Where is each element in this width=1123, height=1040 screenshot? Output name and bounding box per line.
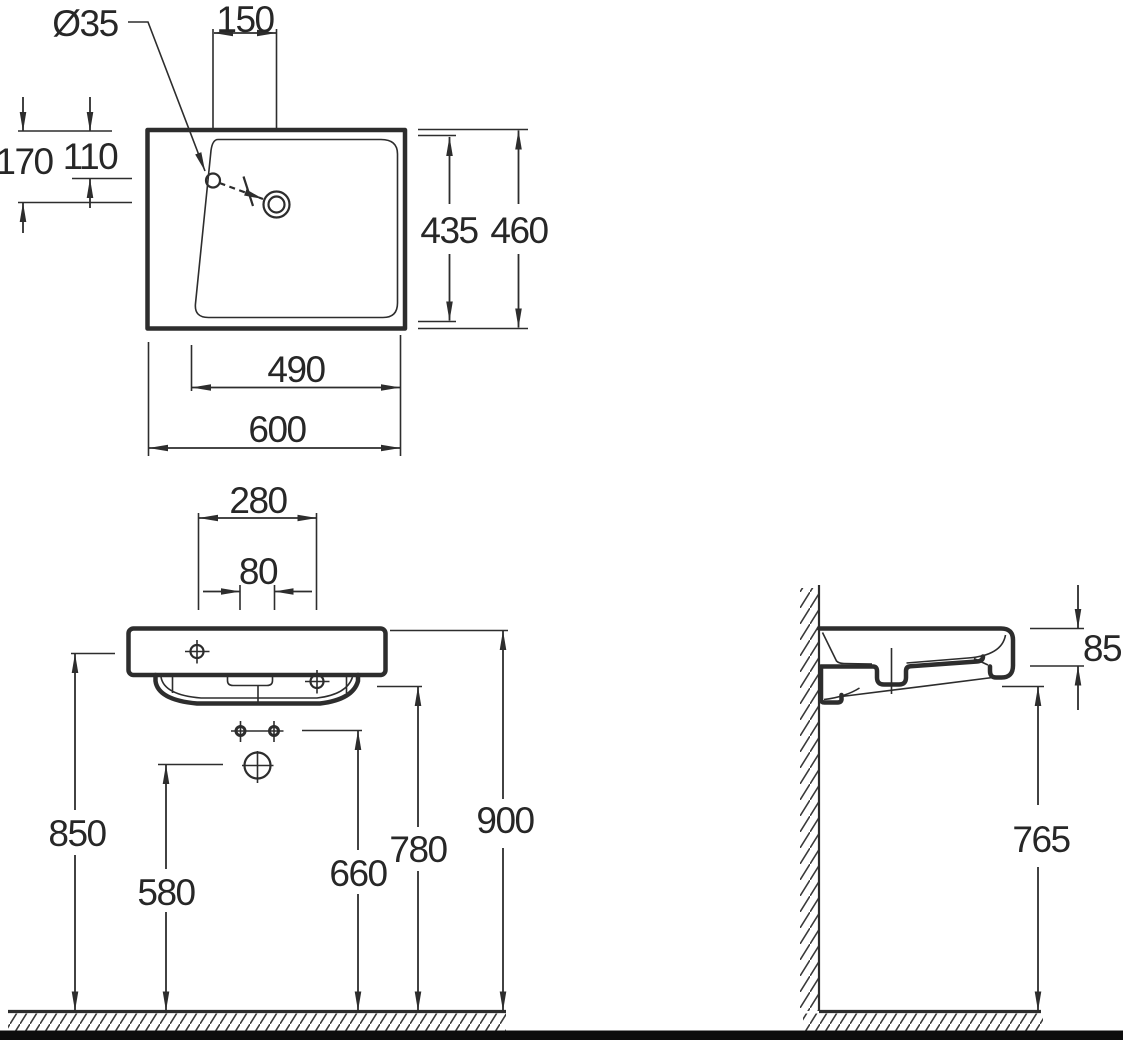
dim-label-460: 460 xyxy=(490,210,548,251)
dim-label-900: 900 xyxy=(476,800,534,841)
basin-outer-outline xyxy=(148,130,406,329)
top-view: Ø35 150 170 110 435 460 490 600 xyxy=(0,0,549,456)
dim-label-110: 110 xyxy=(63,136,118,177)
bowl-section-inner xyxy=(823,633,1006,666)
dim-label-80: 80 xyxy=(239,551,278,592)
dim-label-85: 85 xyxy=(1083,628,1122,669)
basin-apron xyxy=(129,629,386,676)
basin-profile-underside xyxy=(821,657,983,685)
dim-lines-heights xyxy=(75,631,503,1011)
dim-label-faucet-diameter: Ø35 xyxy=(52,3,118,44)
dim-label-600: 600 xyxy=(248,409,306,450)
dim-label-170: 170 xyxy=(0,141,54,182)
washbasin-drawing: Ø35 150 170 110 435 460 490 600 xyxy=(0,0,1123,1040)
dim-label-280: 280 xyxy=(229,480,287,521)
floor-hatching-side xyxy=(803,1014,1043,1031)
bowl-underside xyxy=(156,675,359,704)
underside-slant-lines xyxy=(824,677,1001,700)
dim-label-490: 490 xyxy=(267,349,325,390)
side-view: 85 765 xyxy=(800,585,1122,1011)
dim-label-660: 660 xyxy=(329,853,387,894)
basin-profile-rim xyxy=(819,629,1013,678)
floor-hatching-front xyxy=(8,1014,506,1031)
front-view: 280 80 850 580 660 780 900 xyxy=(48,480,534,1011)
dim-label-780: 780 xyxy=(389,829,447,870)
drain-trap-outline xyxy=(228,677,273,703)
wall-hatching xyxy=(800,588,819,1011)
dim-label-150: 150 xyxy=(216,0,274,40)
floor xyxy=(8,1012,1043,1031)
dim-label-435: 435 xyxy=(420,210,478,251)
dim-label-850: 850 xyxy=(48,813,106,854)
bottom-bar xyxy=(0,1031,1123,1040)
dim-label-765: 765 xyxy=(1012,819,1070,860)
technical-drawing-page: Ø35 150 170 110 435 460 490 600 xyxy=(0,0,1123,1040)
dim-label-580: 580 xyxy=(137,872,195,913)
